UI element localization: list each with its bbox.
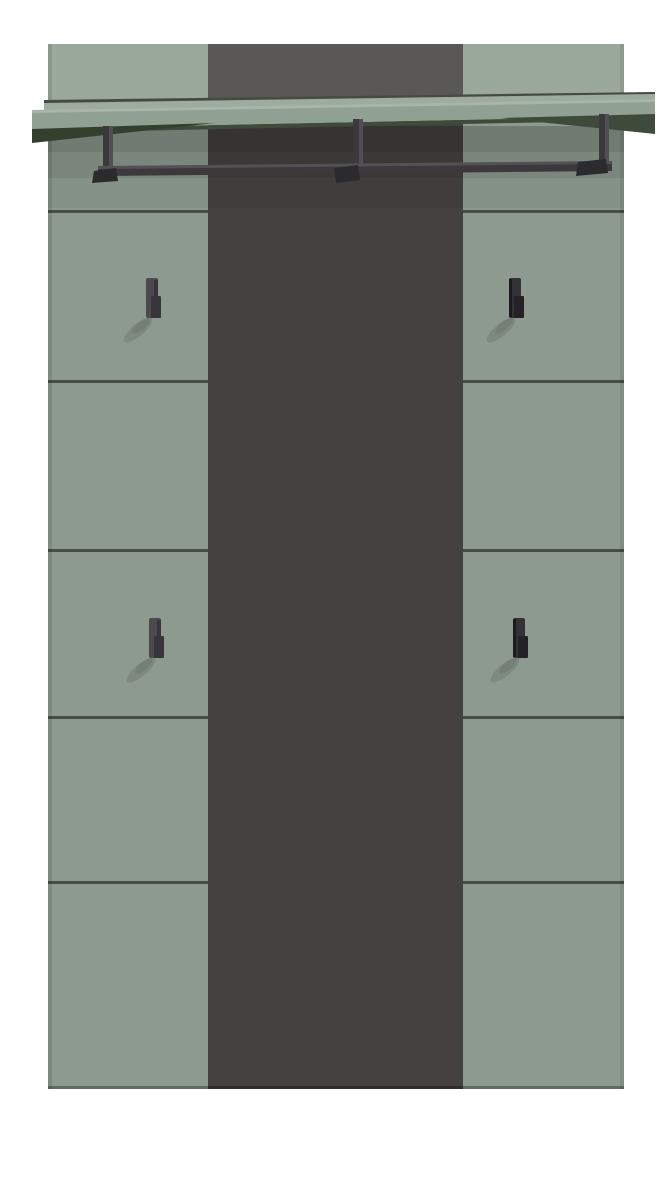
rail-bracket-middle-face bbox=[359, 119, 363, 171]
panel-left-edge-shade bbox=[48, 44, 52, 1089]
panel-bottom-edge-shade bbox=[48, 1086, 624, 1089]
seam-line-right-2 bbox=[463, 380, 624, 383]
center-stripe-top-light bbox=[208, 44, 463, 104]
panel-right-edge-shade bbox=[620, 44, 624, 1089]
product-photo bbox=[0, 0, 669, 1200]
coat-rack-render bbox=[0, 0, 669, 1200]
hook-tip bbox=[518, 636, 528, 658]
hook-tip bbox=[514, 296, 524, 318]
rail-bracket-middle-foot bbox=[334, 165, 360, 183]
seam-line-right-3 bbox=[463, 549, 624, 552]
seam-line-left-4 bbox=[48, 716, 208, 719]
seam-line-right-5 bbox=[463, 881, 624, 884]
seam-line-right-4 bbox=[463, 716, 624, 719]
seam-line-left-2 bbox=[48, 380, 208, 383]
seam-line-left-3 bbox=[48, 549, 208, 552]
hook-body-edge bbox=[513, 619, 516, 657]
hook-tip bbox=[151, 296, 161, 318]
seam-line-right-1 bbox=[463, 210, 624, 213]
seam-line-left-5 bbox=[48, 881, 208, 884]
seam-line-left-1 bbox=[48, 210, 208, 213]
hook-body-edge bbox=[509, 279, 512, 317]
wall-panel bbox=[48, 44, 624, 1089]
hook-tip bbox=[154, 636, 164, 658]
rail-bracket-right-face bbox=[605, 114, 609, 166]
